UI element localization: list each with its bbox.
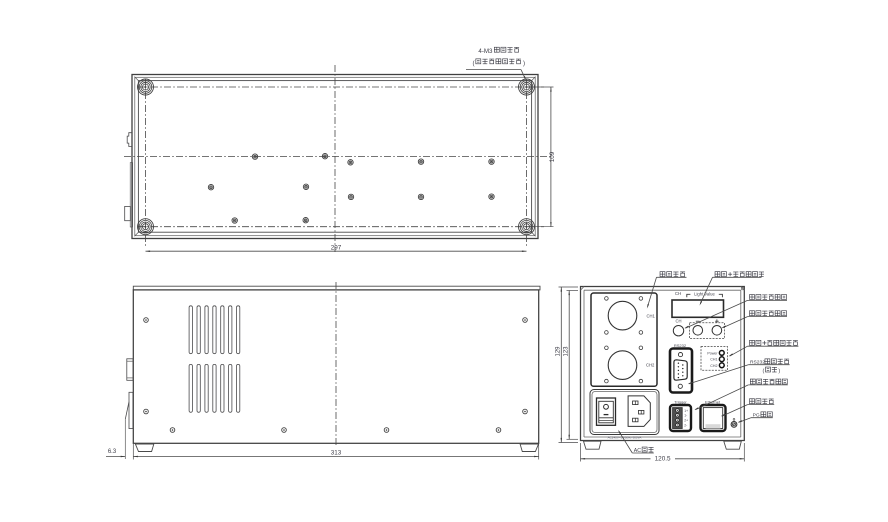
svg-text:CH2: CH2 — [710, 364, 717, 368]
svg-text:CH: CH — [675, 291, 681, 296]
svg-text:297: 297 — [331, 245, 342, 252]
svg-text:Power: Power — [707, 351, 718, 355]
svg-text:CH1: CH1 — [710, 358, 717, 362]
svg-text:4-M3: 4-M3 — [478, 48, 493, 55]
svg-text:): ) — [523, 60, 525, 67]
svg-text:(: ( — [763, 368, 765, 374]
svg-text:AC240V~50/60Hz 800VA: AC240V~50/60Hz 800VA — [608, 435, 642, 439]
svg-text:): ) — [778, 368, 780, 374]
svg-text:123: 123 — [564, 346, 570, 357]
svg-text:6.3: 6.3 — [108, 449, 117, 455]
svg-text:Trigger: Trigger — [674, 399, 687, 404]
svg-text:CH: CH — [675, 319, 681, 324]
svg-text:2+: 2+ — [684, 419, 688, 423]
svg-text:1+: 1+ — [684, 409, 688, 413]
svg-text:313: 313 — [331, 449, 342, 456]
svg-text:1-: 1- — [684, 414, 687, 418]
svg-text:2-: 2- — [684, 423, 687, 427]
svg-text:129: 129 — [555, 346, 561, 357]
svg-text:CH1: CH1 — [647, 313, 656, 318]
svg-text:109: 109 — [549, 151, 556, 162]
svg-text:CH2: CH2 — [646, 363, 655, 368]
svg-text:120.5: 120.5 — [655, 456, 671, 463]
